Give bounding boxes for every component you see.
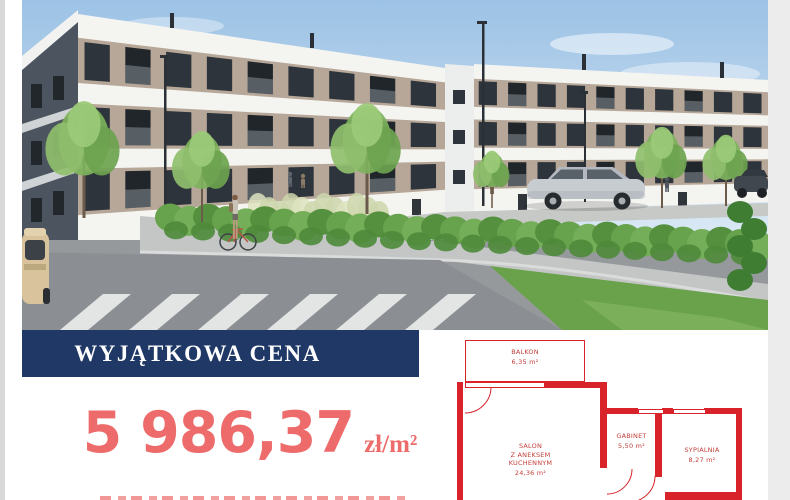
room-salon-name-line2: Z ANEKSEM [503,451,558,460]
room-sypialnia: SYPIALNIA 8,27 m² [674,446,730,464]
room-balkon-area: 6,35 m² [465,358,585,367]
building-render-scene [22,0,768,330]
floor-plan: BALKON 6,35 m² SALON Z ANEKSEM KUCHENNYM… [450,335,750,500]
cropped-bottom-text [100,496,405,500]
page-edge-right [768,0,790,500]
price-amount: 5 986,37 [83,400,354,466]
window-opening [638,409,664,414]
wall-segment [543,382,607,388]
wall-segment [736,408,742,500]
room-salon: SALON Z ANEKSEM KUCHENNYM 24,36 m² [503,442,558,477]
room-gabinet-area: 5,50 m² [607,442,656,451]
window-opening [673,409,706,414]
price-banner: WYJĄTKOWA CENA [22,330,419,377]
room-balkon-name: BALKON [465,348,585,357]
room-gabinet-name: GABINET [607,432,656,441]
door-arc [628,475,656,500]
price: 5 986,37zł/m² [55,400,445,466]
room-salon-name-line3: KUCHENNYM [503,459,558,468]
room-sypialnia-name: SYPIALNIA [674,446,730,455]
page-edge-left [0,0,5,500]
wall-segment [607,408,638,414]
room-sypialnia-area: 8,27 m² [674,456,730,465]
room-salon-area: 24,36 m² [503,469,558,478]
door-arc [464,386,492,414]
room-balkon: BALKON 6,35 m² [465,348,585,366]
wall-segment [655,414,662,477]
wall-segment [665,492,742,500]
room-salon-name-line1: SALON [503,442,558,451]
room-gabinet: GABINET 5,50 m² [607,432,656,450]
real-estate-flyer: WYJĄTKOWA CENA 5 986,37zł/m² BALK [0,0,790,500]
building-render [22,0,768,330]
wall-segment [457,382,463,500]
wall-segment [600,382,607,468]
beige-car [22,228,50,304]
price-unit: zł/m² [364,431,417,458]
banner-label: WYJĄTKOWA CENA [74,341,321,367]
